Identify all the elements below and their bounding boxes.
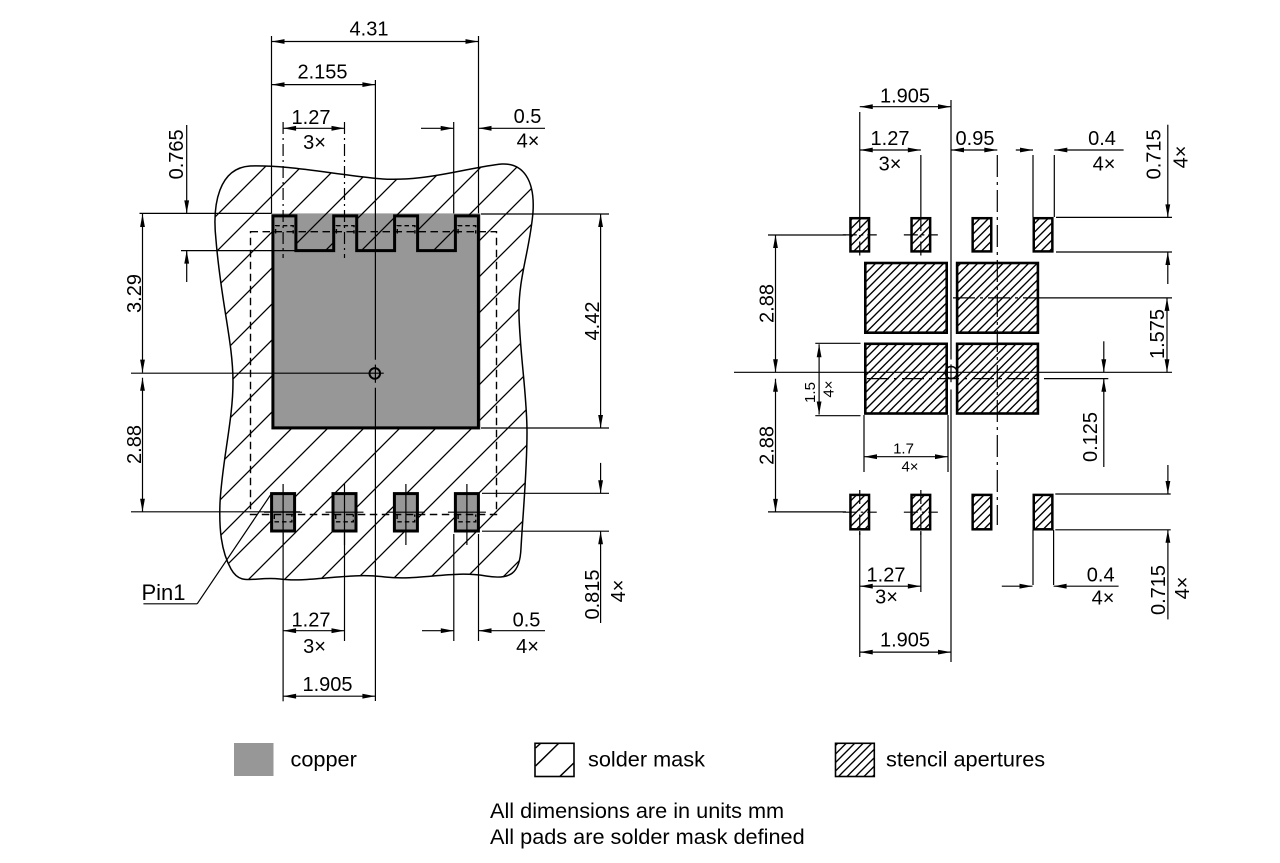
svg-text:2.88: 2.88 (124, 425, 146, 464)
svg-text:1.27: 1.27 (292, 107, 331, 129)
svg-text:0.715: 0.715 (1144, 129, 1166, 179)
svg-text:1.905: 1.905 (880, 86, 930, 108)
svg-text:0.4: 0.4 (1087, 565, 1115, 587)
svg-text:1.7: 1.7 (893, 441, 914, 458)
svg-text:4.31: 4.31 (350, 19, 389, 41)
svg-text:0.815: 0.815 (582, 569, 604, 619)
svg-text:4×: 4× (901, 459, 918, 476)
svg-text:1.27: 1.27 (867, 565, 906, 587)
svg-text:All pads are solder mask defin: All pads are solder mask defined (490, 824, 805, 849)
svg-text:4.42: 4.42 (582, 302, 604, 341)
svg-text:4×: 4× (608, 580, 630, 603)
svg-text:0.95: 0.95 (956, 128, 995, 150)
svg-text:2.155: 2.155 (297, 62, 347, 84)
svg-text:4×: 4× (1171, 146, 1193, 169)
svg-text:1.27: 1.27 (871, 128, 910, 150)
svg-text:0.715: 0.715 (1148, 565, 1170, 615)
svg-text:4×: 4× (821, 380, 838, 397)
svg-text:3×: 3× (879, 154, 902, 176)
svg-text:3×: 3× (303, 636, 326, 658)
svg-text:1.27: 1.27 (292, 610, 331, 632)
svg-text:0.4: 0.4 (1088, 128, 1116, 150)
svg-text:0.765: 0.765 (166, 129, 188, 179)
svg-text:2.88: 2.88 (757, 284, 779, 323)
svg-text:stencil apertures: stencil apertures (886, 747, 1045, 772)
svg-text:All dimensions are in units mm: All dimensions are in units mm (490, 798, 784, 823)
svg-text:0.125: 0.125 (1080, 412, 1102, 462)
svg-text:1.905: 1.905 (302, 674, 352, 696)
svg-text:1.905: 1.905 (880, 630, 930, 652)
svg-text:1.5: 1.5 (802, 382, 819, 403)
svg-text:3×: 3× (303, 132, 326, 154)
svg-text:3.29: 3.29 (124, 274, 146, 313)
svg-text:1.575: 1.575 (1147, 309, 1169, 359)
svg-text:4×: 4× (1092, 588, 1115, 610)
svg-text:2.88: 2.88 (757, 426, 779, 465)
svg-text:0.5: 0.5 (513, 610, 541, 632)
svg-text:4×: 4× (516, 636, 539, 658)
svg-text:3×: 3× (875, 587, 898, 609)
svg-text:0.5: 0.5 (514, 106, 542, 128)
svg-text:solder mask: solder mask (588, 747, 705, 772)
svg-text:4×: 4× (1172, 577, 1194, 600)
svg-text:4×: 4× (517, 131, 540, 153)
svg-text:copper: copper (291, 747, 357, 772)
svg-text:Pin1: Pin1 (142, 580, 186, 605)
svg-text:4×: 4× (1093, 154, 1116, 176)
